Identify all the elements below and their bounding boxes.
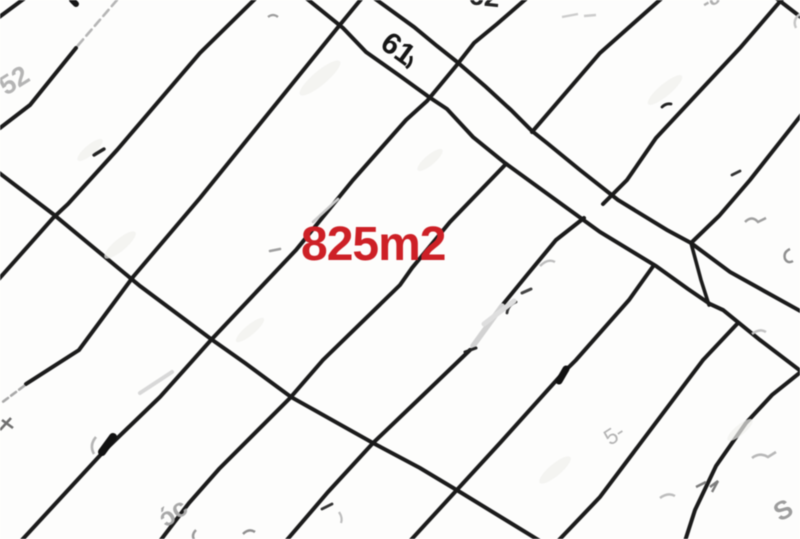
svg-text:825m2: 825m2 bbox=[301, 218, 445, 271]
